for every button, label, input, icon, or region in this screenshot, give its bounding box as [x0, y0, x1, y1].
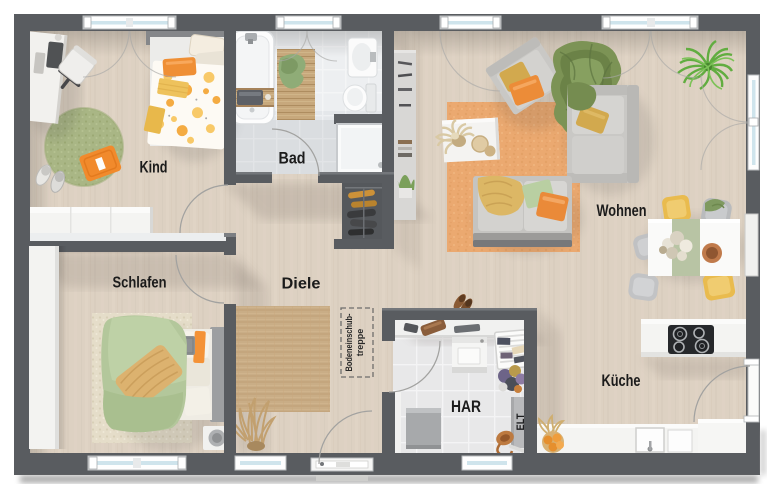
svg-text:HAR: HAR — [451, 397, 481, 416]
svg-text:treppe: treppe — [355, 329, 365, 357]
svg-text:Diele: Diele — [282, 276, 321, 293]
svg-text:Bodeneinschub-: Bodeneinschub- — [344, 314, 354, 372]
svg-text:Wohnen: Wohnen — [597, 202, 647, 220]
svg-text:Kind: Kind — [140, 158, 168, 177]
svg-text:Schlafen: Schlafen — [113, 275, 167, 292]
svg-text:Küche: Küche — [602, 371, 641, 390]
svg-text:Bad: Bad — [279, 149, 306, 168]
